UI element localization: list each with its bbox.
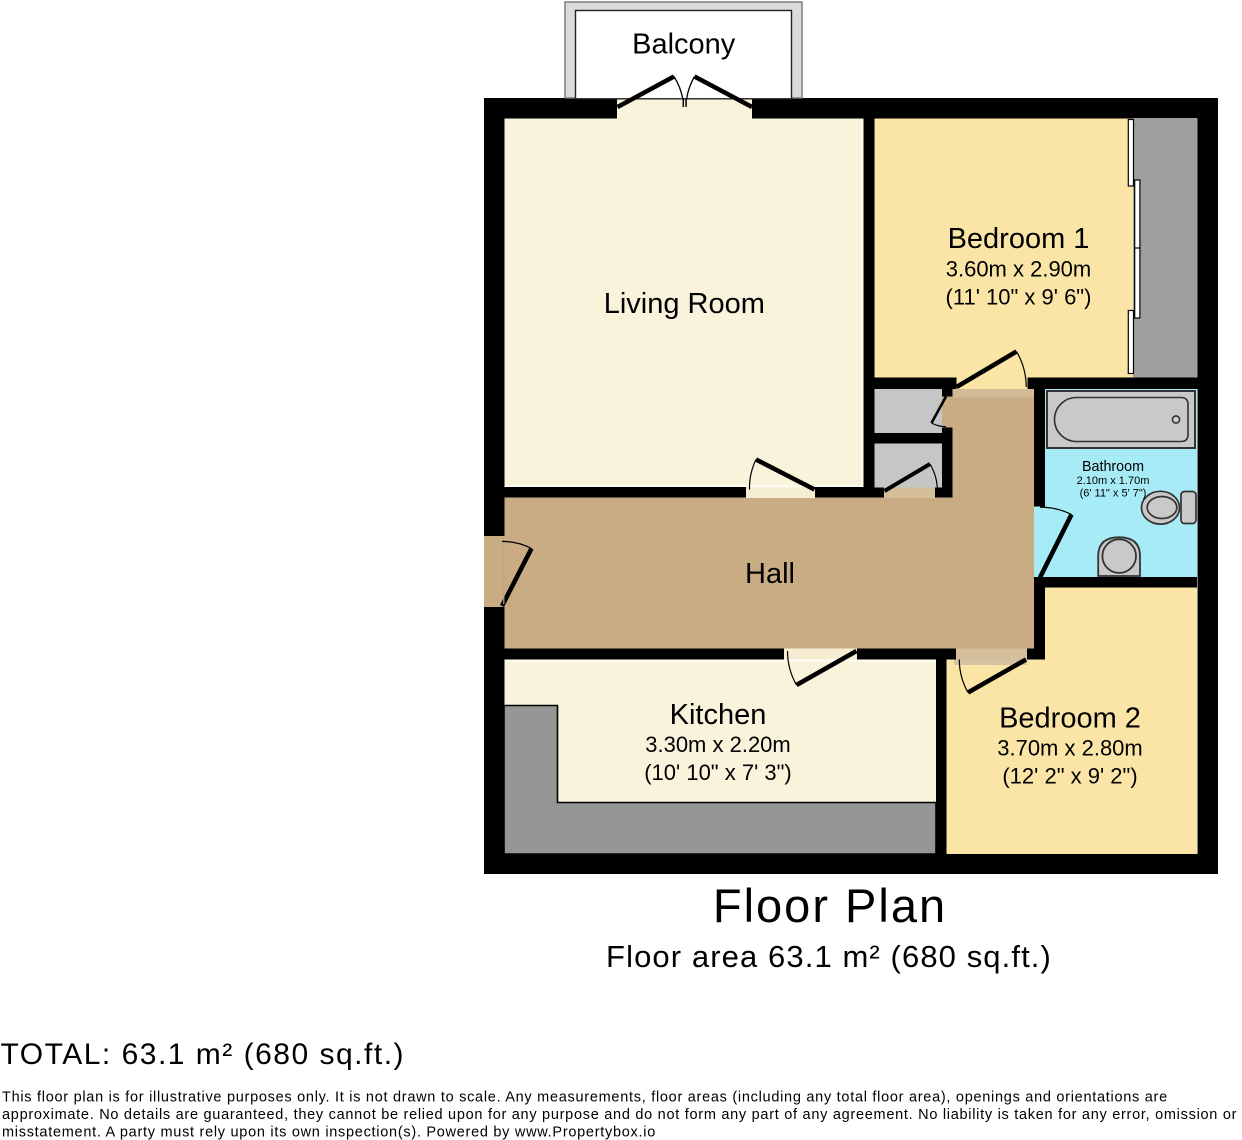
svg-text:(10' 10" x 7' 3"): (10' 10" x 7' 3") — [644, 760, 792, 785]
svg-text:(6' 11" x 5' 7"): (6' 11" x 5' 7") — [1080, 488, 1147, 500]
svg-text:Floor Plan: Floor Plan — [713, 879, 947, 932]
svg-text:misstatement. A party must rel: misstatement. A party must rely upon its… — [2, 1125, 656, 1140]
svg-text:approximate. No details are gu: approximate. No details are guaranteed, … — [2, 1107, 1237, 1123]
svg-text:Bathroom: Bathroom — [1082, 459, 1144, 475]
svg-text:This floor plan is for illustr: This floor plan is for illustrative purp… — [2, 1089, 1168, 1105]
svg-text:Floor area 63.1 m² (680 sq.ft.: Floor area 63.1 m² (680 sq.ft.) — [606, 939, 1052, 974]
svg-text:Living Room: Living Room — [604, 288, 765, 320]
svg-text:3.30m x 2.20m: 3.30m x 2.20m — [645, 732, 791, 757]
svg-text:Bedroom 1: Bedroom 1 — [948, 223, 1090, 255]
svg-text:3.60m x 2.90m: 3.60m x 2.90m — [946, 257, 1092, 282]
svg-text:Balcony: Balcony — [632, 28, 736, 60]
svg-text:Hall: Hall — [745, 558, 795, 590]
svg-text:(11' 10" x 9' 6"): (11' 10" x 9' 6") — [946, 285, 1092, 310]
svg-text:3.70m x 2.80m: 3.70m x 2.80m — [997, 736, 1143, 761]
svg-text:Kitchen: Kitchen — [670, 699, 767, 731]
svg-text:(12' 2" x 9' 2"): (12' 2" x 9' 2") — [1002, 764, 1137, 789]
svg-text:2.10m x 1.70m: 2.10m x 1.70m — [1077, 475, 1150, 487]
svg-text:Bedroom 2: Bedroom 2 — [999, 703, 1141, 735]
svg-text:TOTAL: 63.1 m² (680 sq.ft.): TOTAL: 63.1 m² (680 sq.ft.) — [1, 1038, 406, 1071]
